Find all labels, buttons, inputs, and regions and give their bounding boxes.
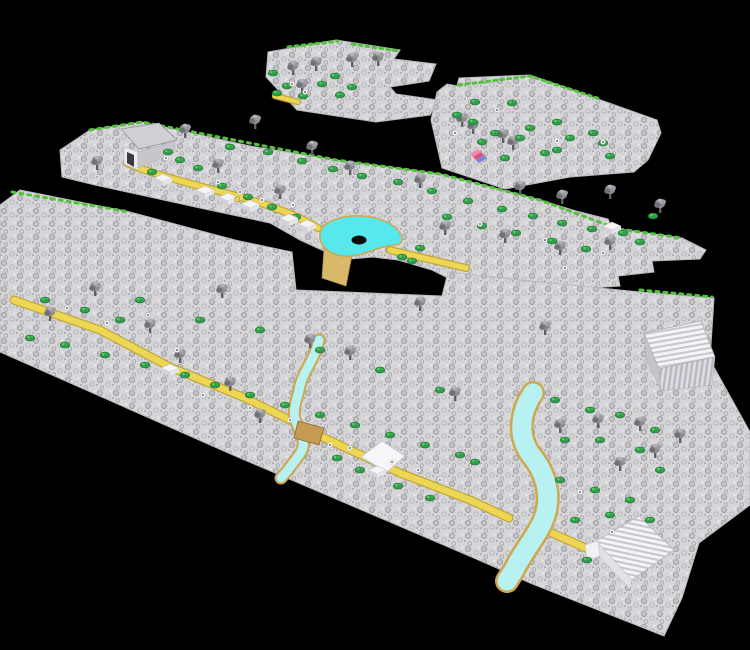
- bush-icon: [500, 155, 510, 161]
- flower-icon: [201, 393, 206, 398]
- bush-icon: [477, 139, 487, 145]
- bush-icon: [550, 397, 560, 403]
- flower-icon: [438, 478, 443, 483]
- flower-icon: [478, 222, 483, 227]
- item-icon: [235, 197, 240, 202]
- bush-icon: [442, 214, 452, 220]
- bush-icon: [570, 517, 580, 523]
- bush-icon: [147, 169, 157, 175]
- bush-icon: [385, 432, 395, 438]
- bush-icon: [528, 213, 538, 219]
- map-viewport[interactable]: [0, 0, 750, 650]
- bush-icon: [650, 427, 660, 433]
- bush-icon: [135, 297, 145, 303]
- bush-icon: [315, 412, 325, 418]
- bush-icon: [540, 150, 550, 156]
- bush-icon: [463, 198, 473, 204]
- bush-icon: [25, 335, 35, 341]
- flower-icon: [238, 190, 243, 195]
- bush-icon: [243, 194, 253, 200]
- bush-icon: [588, 130, 598, 136]
- bush-icon: [175, 157, 185, 163]
- flower-icon: [348, 446, 353, 451]
- flower-icon: [601, 140, 606, 145]
- bush-icon: [560, 437, 570, 443]
- bush-icon: [582, 557, 592, 563]
- bush-icon: [40, 297, 50, 303]
- bush-icon: [350, 422, 360, 428]
- bush-icon: [210, 382, 220, 388]
- flower-icon: [291, 203, 296, 208]
- bush-icon: [490, 130, 500, 136]
- bush-icon: [328, 166, 338, 172]
- items: [235, 197, 240, 202]
- flower-icon: [65, 306, 70, 311]
- flower-icon: [164, 156, 169, 161]
- bush-icon: [347, 84, 357, 90]
- bush-icon: [115, 317, 125, 323]
- flower-icon: [601, 251, 606, 256]
- bush-icon: [263, 149, 273, 155]
- bush-icon: [193, 165, 203, 171]
- bush-icon: [420, 442, 430, 448]
- bush-icon: [587, 226, 597, 232]
- bush-icon: [335, 92, 345, 98]
- bush-icon: [180, 372, 190, 378]
- bush-icon: [590, 487, 600, 493]
- bush-icon: [565, 135, 575, 141]
- bush-icon: [515, 135, 525, 141]
- bush-icon: [60, 342, 70, 348]
- bush-icon: [497, 206, 507, 212]
- bush-icon: [393, 483, 403, 489]
- bush-icon: [595, 437, 605, 443]
- bush-icon: [635, 447, 645, 453]
- bush-icon: [397, 254, 407, 260]
- flower-icon: [453, 131, 458, 136]
- bush-icon: [427, 188, 437, 194]
- flower-icon: [563, 266, 568, 271]
- bush-icon: [552, 119, 562, 125]
- bush-icon: [375, 367, 385, 373]
- bush-icon: [557, 220, 567, 226]
- bush-icon: [455, 452, 465, 458]
- bush-icon: [511, 230, 521, 236]
- flower-icon: [216, 180, 221, 185]
- bush-icon: [470, 459, 480, 465]
- bush-icon: [415, 245, 425, 251]
- bush-icon: [635, 239, 645, 245]
- flower-icon: [260, 198, 265, 203]
- flower-icon: [555, 139, 560, 144]
- bush-icon: [140, 362, 150, 368]
- bush-icon: [648, 213, 658, 219]
- bush-icon: [618, 230, 628, 236]
- bush-icon: [317, 81, 327, 87]
- bush-icon: [100, 352, 110, 358]
- bush-icon: [507, 100, 517, 106]
- bush-icon: [581, 246, 591, 252]
- flower-icon: [288, 418, 293, 423]
- bush-icon: [547, 238, 557, 244]
- bush-icon: [163, 149, 173, 155]
- bush-icon: [655, 467, 665, 473]
- flower-icon: [303, 90, 308, 95]
- bush-icon: [585, 407, 595, 413]
- bush-icon: [297, 158, 307, 164]
- bush-icon: [615, 412, 625, 418]
- world-map-render[interactable]: [0, 0, 750, 650]
- pond-hole[interactable]: [352, 236, 367, 245]
- bush-icon: [195, 317, 205, 323]
- bush-icon: [272, 90, 282, 96]
- bush-icon: [435, 387, 445, 393]
- bush-icon: [525, 125, 535, 131]
- bush-icon: [315, 347, 325, 353]
- flower-icon: [105, 321, 110, 326]
- bush-icon: [332, 455, 342, 461]
- bush-icon: [605, 512, 615, 518]
- bush-icon: [470, 99, 480, 105]
- bush-icon: [468, 119, 478, 125]
- flower-icon: [146, 313, 151, 318]
- flower-icon: [175, 348, 180, 353]
- bush-icon: [552, 147, 562, 153]
- bush-icon: [407, 258, 417, 264]
- bush-icon: [645, 517, 655, 523]
- bush-icon: [625, 497, 635, 503]
- flower-icon: [416, 468, 421, 473]
- flower-icon: [328, 443, 333, 448]
- bush-icon: [555, 477, 565, 483]
- bush-icon: [225, 144, 235, 150]
- flower-icon: [543, 238, 548, 243]
- bush-icon: [355, 467, 365, 473]
- bush-icon: [425, 495, 435, 501]
- bush-icon: [280, 402, 290, 408]
- bush-icon: [452, 112, 462, 118]
- bush-icon: [267, 204, 277, 210]
- bush-icon: [605, 153, 615, 159]
- bush-icon: [255, 327, 265, 333]
- bush-icon: [357, 173, 367, 179]
- flower-icon: [610, 530, 615, 535]
- flower-icon: [495, 108, 500, 113]
- bush-icon: [80, 307, 90, 313]
- flower-icon: [248, 406, 253, 411]
- bush-icon: [245, 392, 255, 398]
- flower-icon: [290, 82, 295, 87]
- bush-icon: [330, 73, 340, 79]
- bush-icon: [268, 70, 278, 76]
- bush-icon: [393, 179, 403, 185]
- flower-icon: [578, 490, 583, 495]
- flower-icon: [390, 460, 395, 465]
